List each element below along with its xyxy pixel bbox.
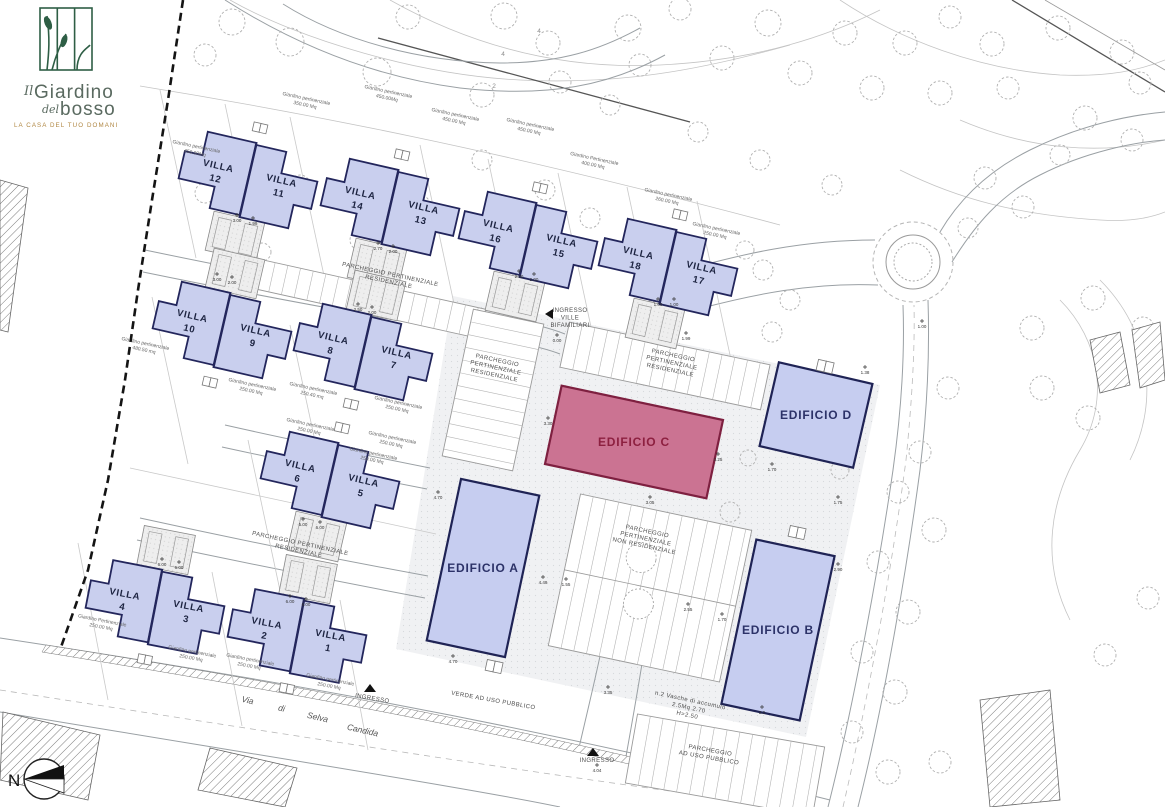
boundary-diagonal [378, 38, 690, 122]
road-edge [940, 112, 1165, 232]
spot-elevation: 6.00 [286, 599, 295, 604]
villa-pair: VILLA12VILLA11 [164, 108, 327, 271]
spot-elevation: 2.90 [834, 567, 843, 572]
tree [491, 3, 517, 29]
spot-elevation: 1.00 [670, 302, 679, 307]
contour-elevation: 4 [501, 51, 505, 58]
spot-elevation: 3.35 [604, 690, 613, 695]
street-name-word: Selva [306, 710, 329, 725]
tree [997, 77, 1019, 99]
tree [580, 208, 600, 228]
contour-elevation: 2 [492, 83, 496, 90]
north-label: N [8, 771, 20, 790]
spot-elevation: 3.00 [213, 277, 222, 282]
tree [615, 15, 641, 41]
spot-marker [863, 365, 867, 369]
spot-elevation: 6.00 [175, 565, 184, 570]
tree [753, 260, 773, 280]
spot-elevation: 2.00 [228, 280, 237, 285]
garage-marker [144, 655, 153, 665]
tree [780, 290, 800, 310]
garage-marker [679, 210, 688, 220]
garden-label: Giardino pertinenziale450.00 Mq [504, 117, 554, 139]
tree [1081, 286, 1105, 310]
tree [833, 21, 857, 45]
tree [1110, 40, 1134, 64]
tree [755, 10, 781, 36]
tree [896, 600, 920, 624]
road-edge [225, 0, 665, 91]
tree [1121, 129, 1143, 151]
spot-elevation: 4.49 [539, 580, 548, 585]
tree [887, 481, 909, 503]
spot-elevation: 3.05 [646, 500, 655, 505]
garage-marker [259, 123, 268, 133]
tree [1094, 644, 1116, 666]
tree [860, 76, 884, 100]
zone-label-line: INGRESSO [553, 308, 588, 314]
garage-marker [209, 378, 218, 388]
tree [219, 9, 245, 35]
garden-label: Giardino pertinenziale260.00 Mq [642, 187, 692, 209]
tree [893, 31, 917, 55]
neighbour-building [0, 180, 28, 332]
spot-marker [684, 331, 688, 335]
edificio-label: EDIFICIO A [447, 561, 519, 575]
edificio-label: EDIFICIO D [780, 408, 852, 422]
neighbour-building [1090, 332, 1130, 393]
contour-line [1045, 0, 1165, 70]
garage-marker [401, 150, 410, 160]
site-plan: VILLA12VILLA11VILLA14VILLA13VILLA16VILLA… [0, 0, 1165, 807]
zone-label-line: BIFAMILIARI [550, 323, 589, 329]
tree [883, 680, 907, 704]
spot-elevation: 5.00 [299, 522, 308, 527]
neighbour-building [198, 748, 297, 807]
neighbour-building [980, 690, 1060, 807]
street-name-word: Candida [346, 722, 379, 739]
tree [1076, 406, 1100, 430]
spot-elevation: 2.70 [374, 246, 383, 251]
spot-elevation: 2.00 [389, 249, 398, 254]
tree [470, 83, 494, 107]
plot-line [212, 572, 242, 726]
spot-elevation: 1.70 [718, 617, 727, 622]
tree [1012, 196, 1034, 218]
road-edge [952, 140, 1165, 262]
logo-mid: del [42, 103, 60, 116]
garden-label: Giardino pertinenziale450.00Mq [362, 84, 412, 106]
spot-elevation: 4.70 [434, 495, 443, 500]
contour-line [230, 0, 790, 81]
ingresso-arrow-up [364, 684, 376, 692]
tree [1020, 316, 1044, 340]
contour-line [390, 0, 880, 66]
tree [1050, 145, 1070, 165]
tree [762, 322, 782, 342]
spot-elevation: 2.0 [759, 710, 766, 715]
logo-mark [40, 8, 92, 70]
tree [750, 150, 770, 170]
tree [822, 175, 842, 195]
edificio-label: EDIFICIO C [598, 435, 670, 449]
logo-tagline: LA CASA DEL TUO DOMANI [14, 122, 118, 129]
tree [929, 751, 951, 773]
tree [1137, 587, 1159, 609]
spot-elevation: 2.30 [515, 274, 524, 279]
garage-marker [341, 423, 350, 433]
tree [363, 58, 391, 86]
spot-elevation: 2.55 [684, 607, 693, 612]
tree [688, 122, 708, 142]
logo-last: bosso [60, 99, 116, 120]
road-edge [858, 300, 929, 807]
tree [669, 0, 691, 20]
garden-label: Giardino pertinenziale250.00 Mq [366, 430, 416, 452]
spot-elevation: 4.70 [449, 659, 458, 664]
garage-marker [539, 183, 548, 193]
roundabout [873, 222, 953, 302]
spot-marker [920, 319, 924, 323]
spot-elevation: 4.04 [593, 768, 602, 773]
site-plan-svg: VILLA12VILLA11VILLA14VILLA13VILLA16VILLA… [0, 0, 1165, 807]
spot-elevation: 3.30 [544, 421, 553, 426]
tree [1073, 106, 1097, 130]
spot-elevation: 1.75 [834, 500, 843, 505]
garden-label: Giardino pertinenziale250.00 Mq [226, 377, 276, 399]
boundary-diagonal [1012, 0, 1165, 92]
contour-elevation: 4 [537, 28, 541, 35]
spot-elevation: 6.00 [316, 525, 325, 530]
logo: Il Giardino del bosso LA CASA DEL TUO DO… [14, 8, 118, 129]
contour-line [1052, 300, 1098, 620]
tree [876, 760, 900, 784]
tree [629, 54, 651, 76]
villa-pair: VILLA10VILLA9 [143, 239, 306, 402]
zone-label-line: VILLE [561, 316, 579, 322]
garden-label: Giardino pertinenziale250.40 mq [287, 381, 337, 403]
tree [1129, 72, 1151, 94]
spot-elevation: 6.00 [302, 602, 311, 607]
garage-marker [350, 400, 359, 410]
zone-label-line: VERDE AD USO PUBBLICO [451, 691, 536, 712]
spot-elevation: 1.38 [861, 370, 870, 375]
spot-elevation: 2.00 [368, 310, 377, 315]
tree [909, 441, 931, 463]
tree [788, 61, 812, 85]
spot-elevation: 1.99 [249, 221, 258, 226]
zone-label: VERDE AD USO PUBBLICO [451, 691, 536, 712]
rect [796, 527, 806, 539]
spot-elevation: 1.70 [768, 467, 777, 472]
spot-elevation: 1.00 [918, 324, 927, 329]
tree [980, 32, 1004, 56]
garden-label: Giardino pertinenziale480.50 mq [119, 336, 169, 358]
spot-elevation: 6.00 [158, 562, 167, 567]
spot-elevation: 2.50 [354, 307, 363, 312]
spot-elevation: 2.00 [530, 277, 539, 282]
tree [194, 44, 216, 66]
garage-marker [286, 684, 295, 694]
edificio-label: EDIFICIO B [742, 623, 814, 637]
neighbour-building [1132, 322, 1165, 388]
garden-label: Giardino Pertinenziale400.00 Mq [568, 151, 619, 174]
tree [1030, 376, 1054, 400]
spot-elevation: 0.00 [553, 338, 562, 343]
tree [472, 150, 492, 170]
tree [396, 5, 420, 29]
logo-prefix: Il [23, 84, 33, 99]
spot-elevation: 1.00 [654, 302, 663, 307]
tree [928, 81, 952, 105]
rect [493, 661, 503, 673]
street-name-word: Via [241, 694, 255, 707]
tree [939, 6, 961, 28]
spot-elevation: 1.55 [562, 582, 571, 587]
tree [937, 377, 959, 399]
street-name-word: di [277, 702, 287, 713]
spot-elevation: 1.99 [682, 336, 691, 341]
tree [922, 518, 946, 542]
spot-elevation: 3.00 [233, 218, 242, 223]
tree [958, 218, 978, 238]
garden-label: Giardino pertinenziale450.00 Mq [429, 107, 479, 129]
spot-elevation: 3.25 [714, 457, 723, 462]
garden-label: Giardino pertinenziale350.00 Mq [280, 91, 330, 113]
